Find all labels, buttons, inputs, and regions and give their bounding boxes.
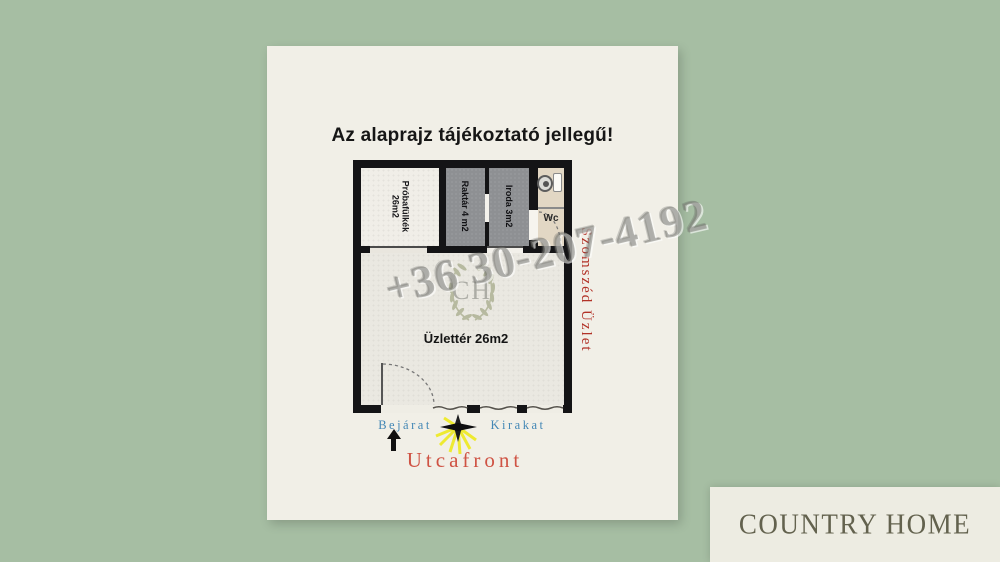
brand-logo: COUNTRY HOME (739, 508, 971, 541)
room-fitting-area: 26m2 (390, 195, 400, 218)
compass-star-icon (428, 404, 490, 462)
north-arrow-stem (391, 439, 396, 451)
floorplan-listing-image: Az alaprajz tájékoztató jellegű! Próbafü… (0, 0, 1000, 562)
brand-logo-panel: COUNTRY HOME (710, 487, 1000, 562)
north-arrow-icon (387, 429, 401, 439)
room-fitting-label: Próbafülkék 26m2 (390, 171, 411, 241)
room-storage-label: Raktár 4 m2 (460, 169, 470, 243)
disclaimer-title: Az alaprajz tájékoztató jellegű! (267, 125, 678, 147)
room-shop-label: Üzlettér 26m2 (386, 331, 546, 346)
room-fitting-name: Próbafülkék (400, 181, 410, 233)
